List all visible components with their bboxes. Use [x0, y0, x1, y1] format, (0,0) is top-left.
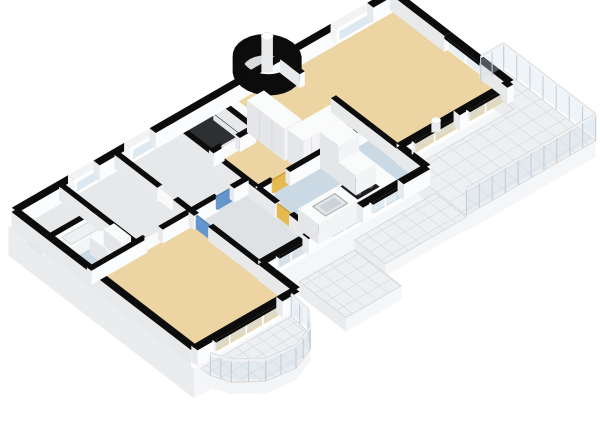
floor-plan-canvas [0, 0, 600, 424]
floor-plan-svg [0, 0, 600, 424]
floor-plan-viewport [0, 0, 600, 424]
